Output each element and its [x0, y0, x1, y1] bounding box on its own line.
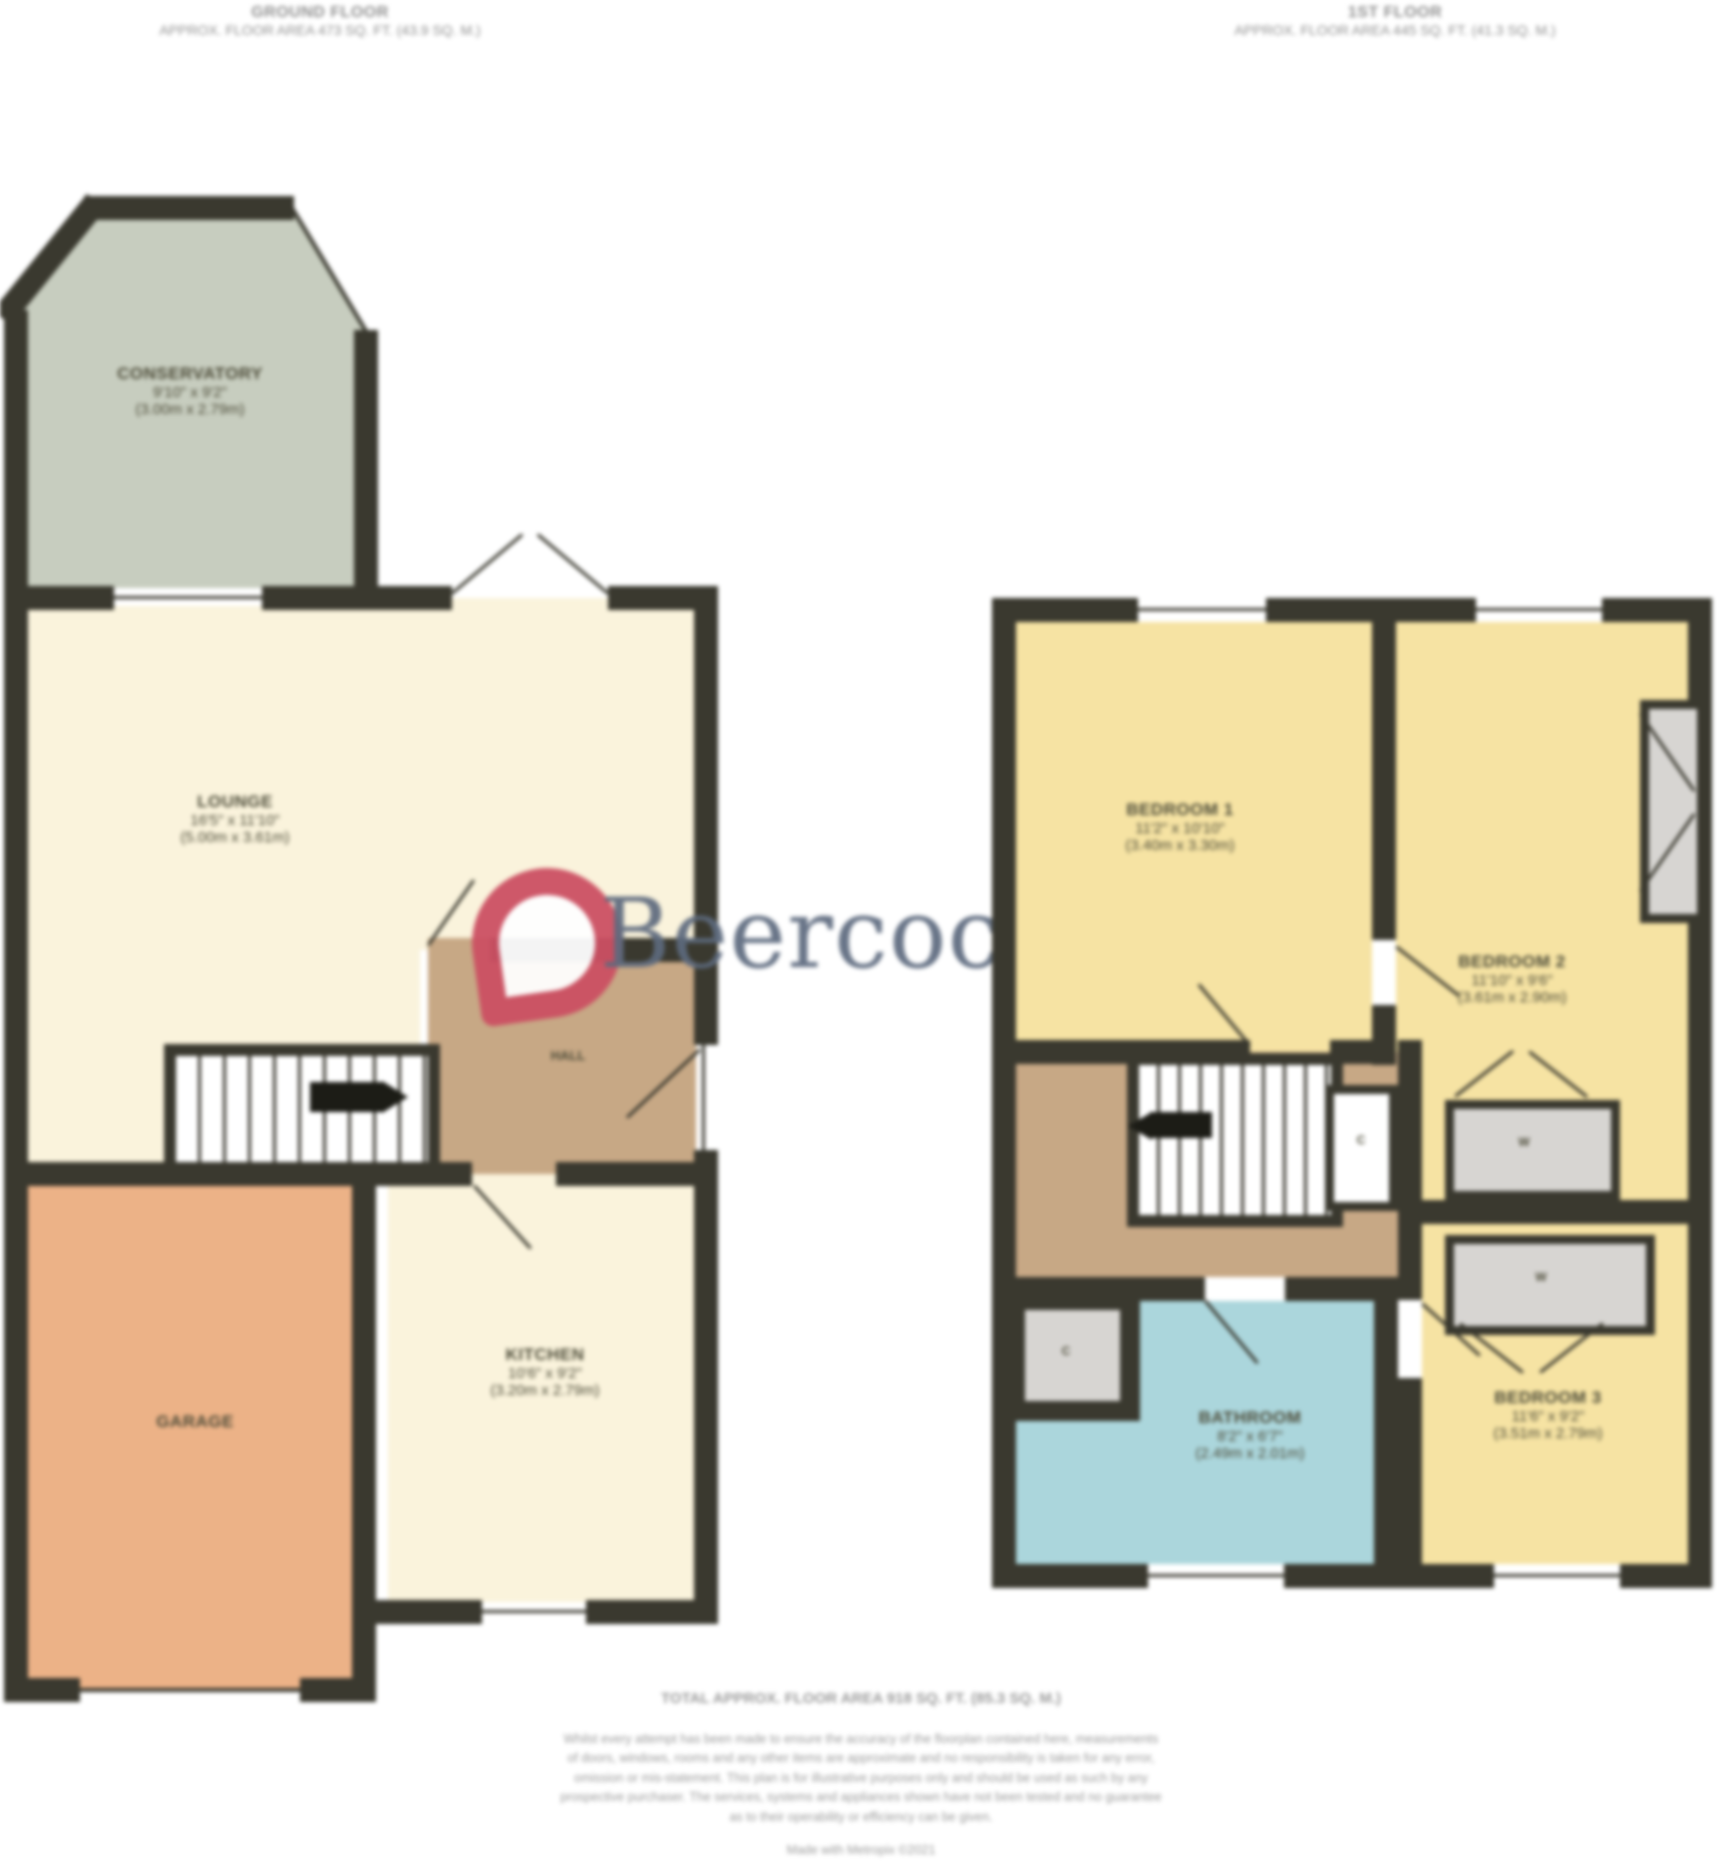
front-door — [702, 1045, 705, 1150]
window — [114, 596, 262, 599]
bathroom-room-l — [1016, 1421, 1140, 1564]
wall — [354, 330, 378, 610]
wall — [586, 1600, 718, 1624]
wardrobe-letter: W — [1535, 1270, 1546, 1284]
wall — [1016, 1277, 1205, 1301]
staircase-first — [1127, 1053, 1343, 1227]
french-door-leaf — [537, 533, 609, 594]
disclaimer-line: of doors, windows, rooms and any other i… — [567, 1751, 1154, 1765]
bedroom2-wardrobe — [1445, 1100, 1620, 1200]
first-floor-title: 1ST FLOOR — [1234, 4, 1555, 22]
wall — [4, 1162, 376, 1186]
wall — [1120, 1301, 1140, 1421]
bedroom1-label: BEDROOM 1 11'2" x 10'10" (3.40m x 3.30m) — [1125, 800, 1234, 854]
kitchen-label: KITCHEN 10'6" x 9'2" (3.20m x 2.79m) — [490, 1345, 599, 1399]
wall — [992, 1564, 1148, 1588]
hall-label: HALL — [551, 1048, 586, 1063]
wall — [376, 1600, 482, 1624]
wall — [694, 1150, 718, 1624]
disclaimer: Whilst every attempt has been made to en… — [301, 1730, 1421, 1827]
wall — [1284, 1564, 1494, 1588]
garage-room — [16, 1186, 364, 1690]
wardrobe-letter: W — [1518, 1135, 1529, 1149]
stairs-arrow-head — [382, 1081, 408, 1113]
ground-floor-title: GROUND FLOOR — [159, 4, 480, 22]
ground-floor-header: GROUND FLOOR APPROX. FLOOR AREA 473 SQ. … — [159, 4, 480, 38]
wall — [4, 1678, 80, 1702]
disclaimer-line: prospective purchaser. The services, sys… — [560, 1790, 1162, 1804]
ground-floor-area: APPROX. FLOOR AREA 473 SQ. FT. (43.9 SQ.… — [159, 22, 480, 38]
wall — [1620, 1564, 1712, 1588]
bedroom3-label: BEDROOM 3 11'6" x 9'2" (3.51m x 2.79m) — [1493, 1388, 1602, 1442]
wall — [4, 598, 28, 1186]
wall — [1422, 1200, 1688, 1224]
first-floor-header: 1ST FLOOR APPROX. FLOOR AREA 445 SQ. FT.… — [1234, 4, 1555, 38]
metropix-credit: Made with Metropix ©2021 — [787, 1843, 936, 1857]
stairs-arrow-head — [1128, 1112, 1152, 1140]
wall — [1602, 598, 1712, 622]
wall — [300, 1678, 376, 1702]
wall — [376, 1162, 472, 1186]
wall — [1398, 1378, 1422, 1564]
wall — [4, 1174, 28, 1702]
wall — [262, 586, 452, 610]
stairs-arrow — [1150, 1112, 1212, 1138]
bedroom2-label: BEDROOM 2 11'10" x 9'6" (3.61m x 2.90m) — [1457, 952, 1566, 1006]
cupboard-letter: C — [1062, 1344, 1071, 1358]
window — [1148, 1574, 1284, 1577]
wall — [992, 598, 1138, 622]
wall — [1374, 1301, 1398, 1564]
disclaimer-line: omission or mis-statement. This plan is … — [574, 1771, 1148, 1785]
bedroom3-wardrobe — [1445, 1235, 1655, 1335]
wall — [1372, 622, 1396, 940]
window — [482, 1610, 586, 1613]
conservatory-label: CONSERVATORY 9'10" x 9'2" (3.00m x 2.79m… — [117, 364, 263, 418]
stairs-arrow — [310, 1082, 382, 1112]
total-floor-area: TOTAL APPROX. FLOOR AREA 918 SQ. FT. (85… — [661, 1690, 1061, 1707]
lounge-label: LOUNGE 16'5" x 11'10" (5.00m x 3.61m) — [180, 792, 289, 846]
garage-label: GARAGE — [156, 1412, 234, 1432]
wall — [1285, 1277, 1398, 1301]
cupboard-letter: C — [1357, 1133, 1366, 1147]
bedroom2-closet — [1640, 700, 1706, 923]
window — [1494, 1574, 1620, 1577]
wall — [1266, 598, 1476, 622]
window — [1138, 608, 1266, 611]
landing-cupboard — [1325, 1085, 1398, 1211]
wall — [1398, 1040, 1422, 1300]
wall — [4, 310, 28, 600]
garage-door — [80, 1688, 300, 1692]
bathroom-label: BATHROOM 8'2" x 6'7" (2.49m x 2.01m) — [1195, 1408, 1304, 1462]
window — [1476, 608, 1602, 611]
disclaimer-line: as to their operability or efficiency ca… — [729, 1810, 992, 1824]
wall — [556, 1162, 718, 1186]
first-floor-area: APPROX. FLOOR AREA 445 SQ. FT. (41.3 SQ.… — [1234, 22, 1555, 38]
disclaimer-line: Whilst every attempt has been made to en… — [564, 1732, 1159, 1746]
floorplan-page: GROUND FLOOR APPROX. FLOOR AREA 473 SQ. … — [0, 0, 1722, 1872]
french-door-leaf — [451, 533, 523, 594]
wall — [992, 598, 1016, 1588]
wall — [352, 1174, 376, 1702]
wall — [84, 196, 294, 220]
